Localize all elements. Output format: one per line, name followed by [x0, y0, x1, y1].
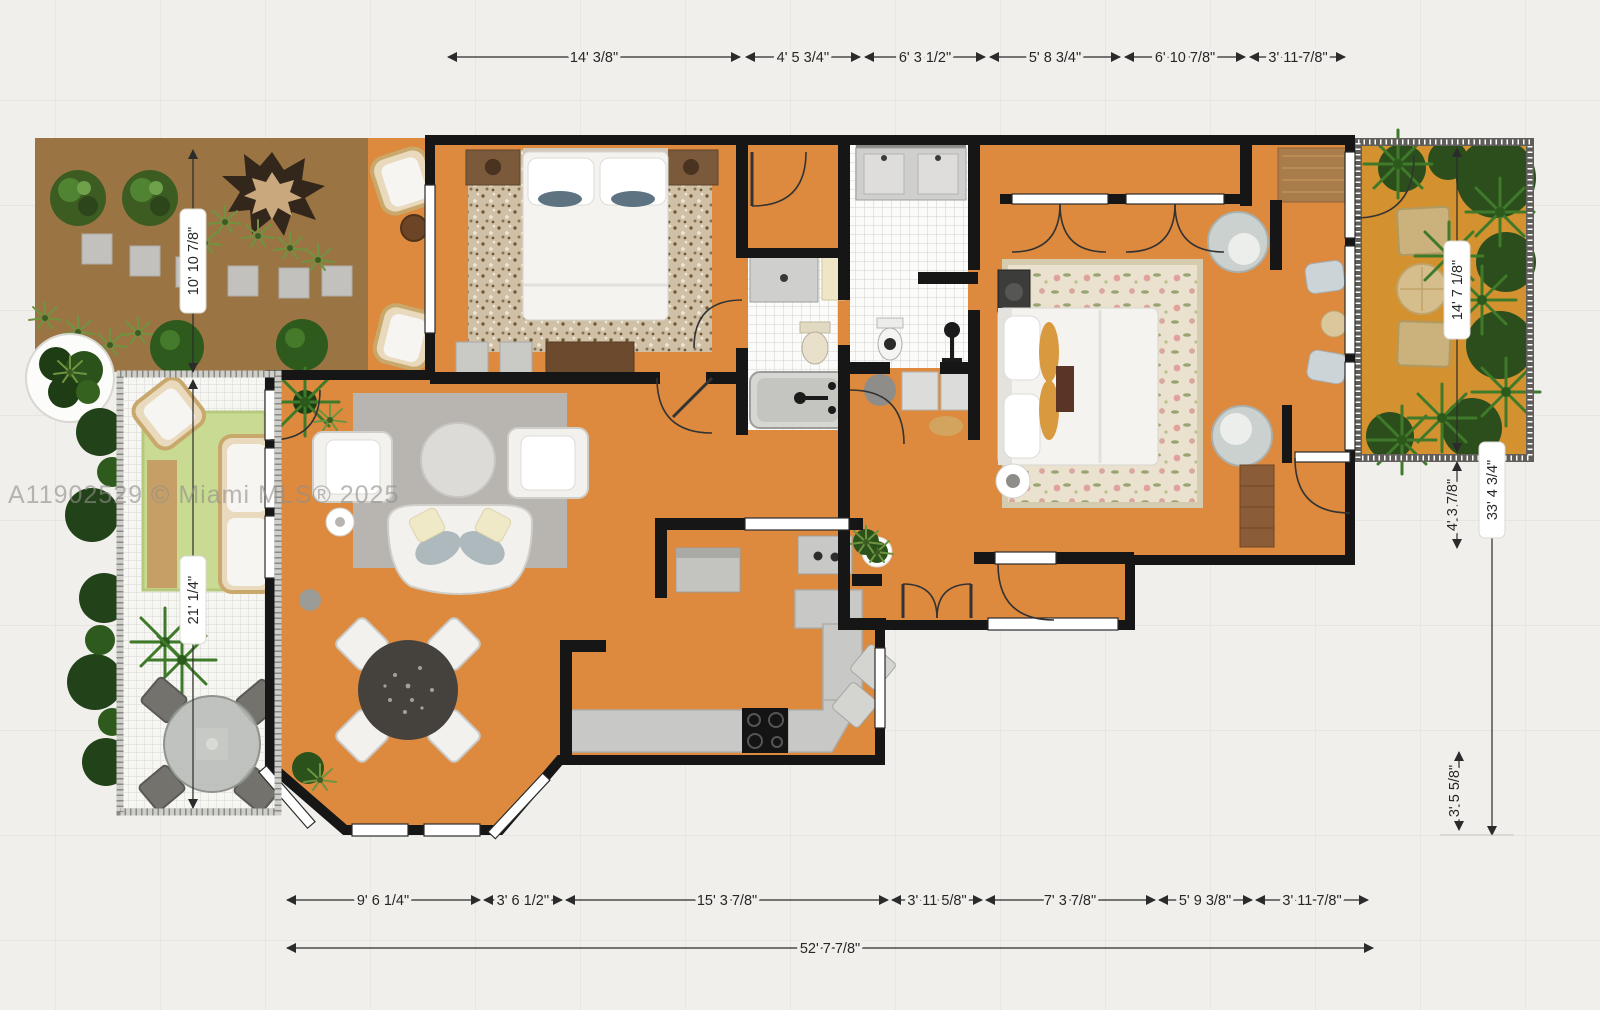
- dim-bottom-4: 3' 11 5/8": [907, 893, 966, 909]
- patio-mat: [147, 460, 177, 588]
- dim-top-5: 6' 10 7/8": [1155, 50, 1215, 66]
- dim-top-2: 4' 5 3/4'': [777, 50, 830, 66]
- dim-top-3: 6' 3 1/2": [899, 50, 951, 66]
- bathtub: [750, 372, 846, 428]
- bedroom2-furniture: [456, 148, 718, 374]
- mls-watermark: A11902529 © Miami MLS® 2025: [8, 481, 399, 509]
- terrace-bush: [276, 319, 328, 371]
- round-ottoman: [421, 423, 495, 497]
- dining-table: [358, 640, 458, 740]
- balcony-furniture: [1397, 207, 1451, 367]
- bed-bench: [546, 342, 634, 374]
- terrace-tree: [122, 170, 178, 226]
- stool: [456, 342, 488, 374]
- desk-seat: [902, 372, 938, 410]
- armchair: [1208, 212, 1268, 272]
- armchair: [508, 428, 588, 498]
- dim-top-6: 3' 11 7/8": [1268, 50, 1327, 66]
- side-table: [401, 215, 427, 241]
- curved-loveseat: [388, 505, 532, 594]
- small-mat: [929, 416, 963, 436]
- dim-top-1: 14' 3/8": [570, 50, 618, 66]
- dim-right-3: 33' 4 3/4": [1485, 460, 1501, 520]
- dim-bottom-1: 9' 6 1/4": [357, 893, 409, 909]
- table-lamp: [996, 464, 1030, 498]
- ring-side-table: [326, 508, 354, 536]
- dresser: [1240, 465, 1274, 547]
- dim-bottom-6: 5' 9 3/8": [1179, 893, 1231, 909]
- dim-right-2: 4' 3 7/8": [1445, 479, 1461, 531]
- cooktop: [742, 708, 788, 753]
- dim-bottom-2: 3' 6 1/2'': [497, 893, 550, 909]
- floor-lamp-base: [299, 589, 321, 611]
- armchair: [1212, 406, 1272, 466]
- toilet: [877, 318, 903, 360]
- dim-left-2: 21' 1/4'': [186, 575, 202, 624]
- dim-bottom-3: 15' 3 7/8": [697, 893, 757, 909]
- round-rug: [864, 374, 896, 406]
- dim-right-1: 14' 7 1/8": [1450, 260, 1466, 320]
- small-round-table: [1321, 311, 1347, 337]
- dim-top-4: 5' 8 3/4": [1029, 50, 1081, 66]
- stool: [500, 342, 532, 374]
- terrace-tree: [50, 170, 106, 226]
- dim-right-4: 3' 5 5/8": [1447, 765, 1463, 817]
- floorplan-svg: 14' 3/8" 4' 5 3/4'' 6' 3 1/2" 5' 8 3/4" …: [0, 0, 1600, 1010]
- dim-bottom-5: 7' 3 7/8": [1044, 893, 1096, 909]
- bed-king: [998, 308, 1158, 465]
- dim-left-1: 10' 10 7/8": [186, 227, 202, 295]
- dim-bottom-7: 3' 11 7/8": [1282, 893, 1341, 909]
- terrace-bush: [150, 320, 204, 374]
- bed-queen: [523, 148, 668, 320]
- toilet: [800, 322, 830, 364]
- dim-bottom-total: 52' 7 7/8": [800, 941, 860, 957]
- floorplan-canvas: 14' 3/8" 4' 5 3/4'' 6' 3 1/2" 5' 8 3/4" …: [0, 0, 1600, 1010]
